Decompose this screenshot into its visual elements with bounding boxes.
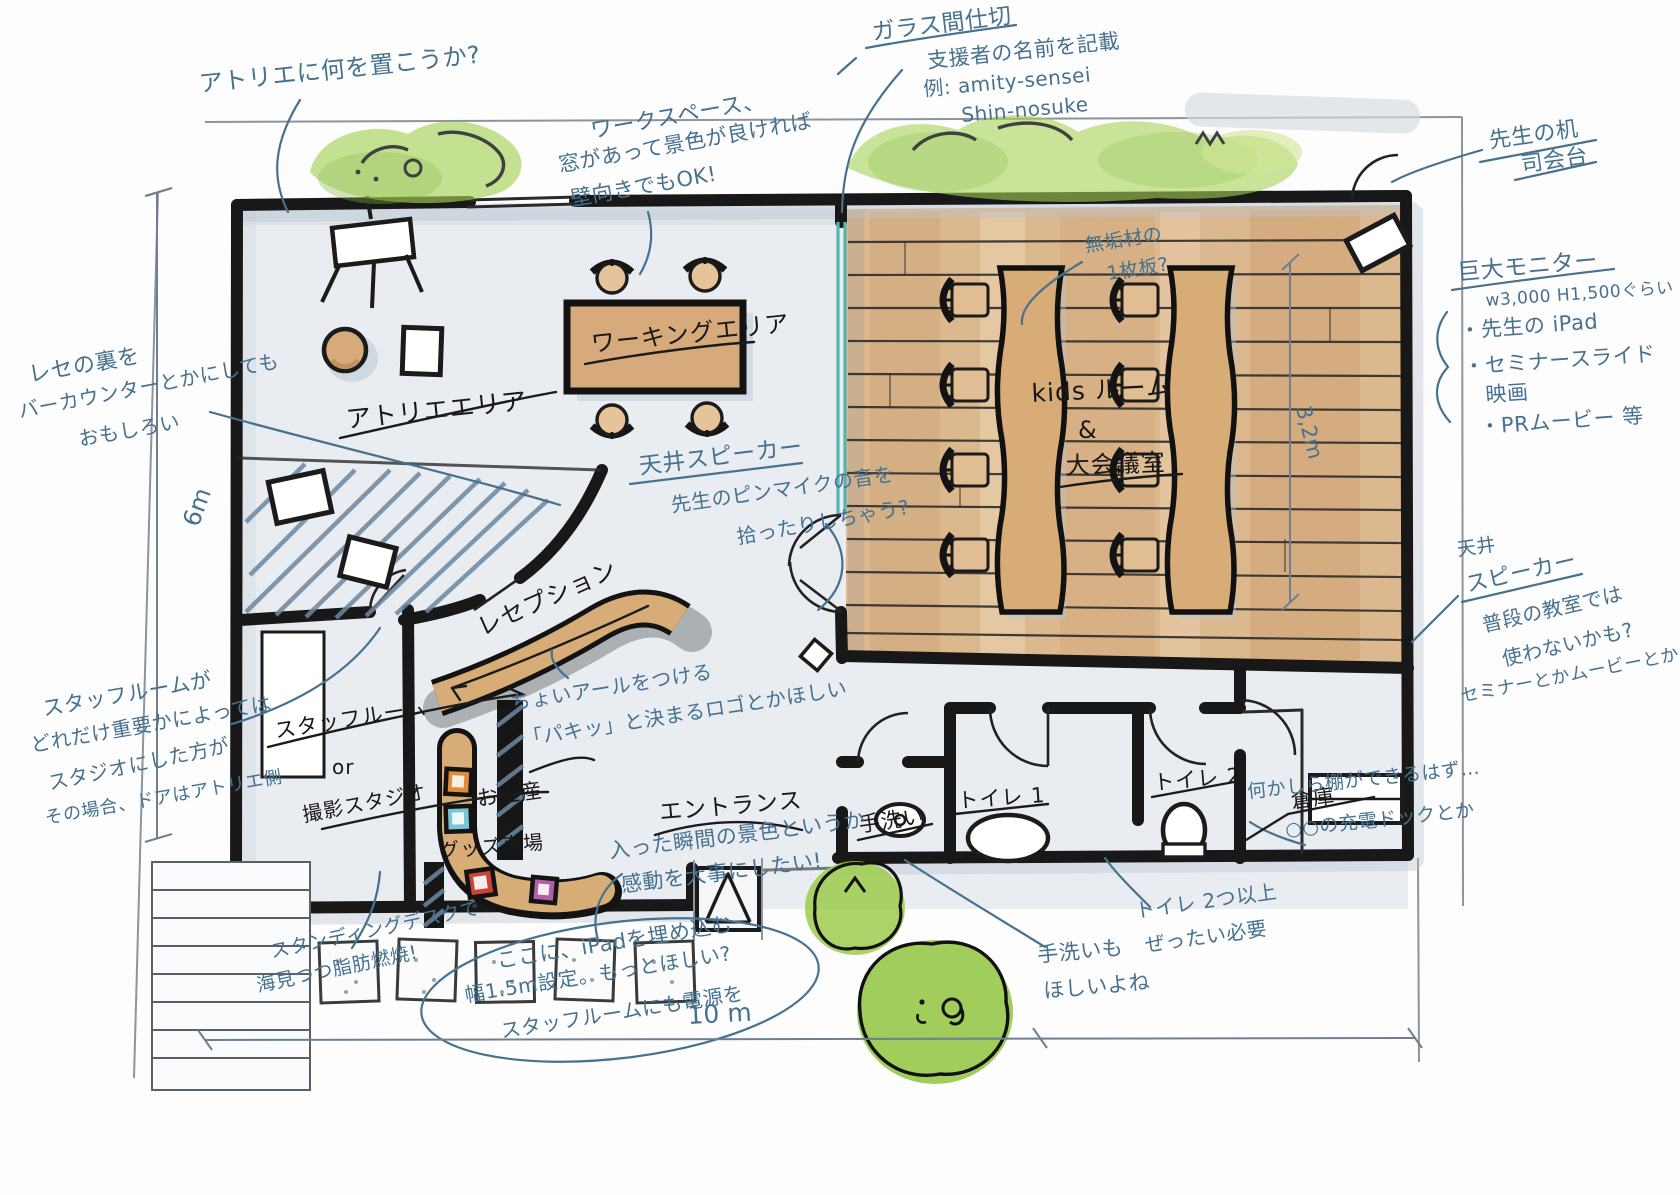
tree bbox=[805, 861, 905, 955]
note-teacher-2: 司会台 bbox=[1519, 144, 1589, 178]
note-handwash-want-1: 手洗いも bbox=[1036, 936, 1124, 967]
stage-platform bbox=[340, 537, 396, 587]
label-kids-hall: 大会議室 bbox=[1065, 449, 1166, 480]
note-atelier-question: アトリエに何を置こうか? bbox=[198, 41, 482, 98]
note-monitor-5: 映画 bbox=[1485, 380, 1530, 407]
toilet-1-bowl bbox=[968, 815, 1048, 861]
tree bbox=[857, 940, 1013, 1084]
easel-board bbox=[332, 219, 414, 266]
note-speaker-right-1: 天井 bbox=[1456, 534, 1498, 561]
label-staff-or: or bbox=[332, 755, 354, 779]
note-monitor-4: ・セミナースライド bbox=[1463, 342, 1657, 379]
note-glass-1: ガラス間仕切 bbox=[871, 3, 1014, 46]
note-handwash-want-2: ほしいよね bbox=[1042, 970, 1151, 1003]
note-toilets-req-2: ぜったい必要 bbox=[1143, 916, 1268, 957]
note-monitor-2: w3,000 H1,500ぐらい bbox=[1485, 278, 1674, 311]
note-monitor-6: ・PRムービー 等 bbox=[1479, 404, 1645, 439]
tree bbox=[848, 115, 1302, 202]
dim-left-6m: 6m bbox=[177, 484, 217, 530]
toilet-2-tank bbox=[1163, 844, 1205, 857]
label-kids-amp: & bbox=[1078, 416, 1098, 444]
kids-long-table bbox=[997, 268, 1064, 612]
kids-long-table bbox=[1167, 268, 1234, 612]
tree bbox=[310, 122, 522, 205]
note-monitor-3: ・先生の iPad bbox=[1459, 309, 1599, 343]
note-bar-3: おもしろい bbox=[77, 409, 182, 450]
stage-platform bbox=[268, 471, 332, 524]
canvas-box bbox=[402, 327, 442, 374]
dim-bottom-10m: 10 m bbox=[687, 998, 753, 1030]
floor-plan-sketch: ワーキングエリア アトリエエリア kids ルーム & 大会議室 レセプション … bbox=[0, 0, 1680, 1195]
